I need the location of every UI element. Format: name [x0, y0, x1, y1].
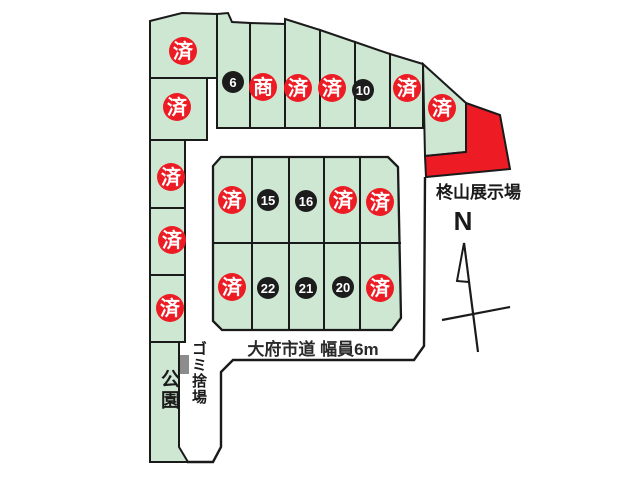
- marker-commercial: 商: [249, 73, 277, 101]
- svg-text:20: 20: [336, 280, 350, 295]
- lot-top-3: [285, 19, 320, 128]
- lot-top-6: [217, 13, 250, 128]
- marker-available-20: 20: [332, 276, 354, 298]
- svg-text:済: 済: [161, 165, 182, 189]
- svg-text:済: 済: [173, 39, 194, 63]
- marker-sold: 済: [284, 74, 312, 102]
- svg-text:15: 15: [261, 193, 275, 208]
- lot-map: 済 6 商 済 済 10 済 済: [0, 0, 640, 480]
- svg-text:済: 済: [222, 188, 243, 212]
- marker-sold: 済: [428, 94, 456, 122]
- svg-text:済: 済: [333, 188, 354, 212]
- north-label: N: [449, 206, 477, 237]
- marker-sold: 済: [158, 226, 186, 254]
- marker-sold: 済: [218, 186, 246, 214]
- north-arrow-icon: [442, 243, 510, 352]
- marker-sold: 済: [163, 93, 191, 121]
- road-label: 大府市道 幅員6m: [233, 335, 393, 360]
- svg-text:16: 16: [299, 194, 313, 209]
- marker-sold: 済: [169, 37, 197, 65]
- marker-available-22: 22: [257, 277, 279, 299]
- svg-text:済: 済: [370, 190, 391, 214]
- svg-text:商: 商: [253, 75, 273, 99]
- marker-sold: 済: [366, 188, 394, 216]
- svg-text:22: 22: [261, 281, 275, 296]
- lot-map-canvas: 済 6 商 済 済 10 済 済: [0, 0, 640, 480]
- marker-sold: 済: [329, 186, 357, 214]
- svg-text:6: 6: [229, 75, 236, 90]
- svg-text:済: 済: [222, 275, 243, 299]
- marker-sold: 済: [318, 74, 346, 102]
- svg-text:済: 済: [397, 76, 418, 100]
- park-label: 公園: [155, 369, 182, 411]
- svg-text:済: 済: [167, 95, 188, 119]
- svg-text:済: 済: [432, 96, 453, 120]
- svg-text:済: 済: [322, 76, 343, 100]
- marker-sold: 済: [366, 274, 394, 302]
- marker-available-6: 6: [222, 71, 244, 93]
- svg-text:済: 済: [370, 276, 391, 300]
- marker-sold: 済: [218, 273, 246, 301]
- exhibition-site-label: 柊山展示場: [436, 178, 521, 203]
- marker-available-15: 15: [257, 189, 279, 211]
- marker-sold: 済: [156, 294, 184, 322]
- marker-available-10: 10: [352, 79, 374, 101]
- marker-available-16: 16: [295, 190, 317, 212]
- marker-available-21: 21: [295, 277, 317, 299]
- marker-sold: 済: [157, 163, 185, 191]
- svg-text:済: 済: [162, 228, 183, 252]
- svg-text:済: 済: [160, 296, 181, 320]
- svg-text:10: 10: [356, 83, 370, 98]
- garbage-station-label: ゴミ捨場: [188, 341, 209, 405]
- svg-text:済: 済: [288, 76, 309, 100]
- svg-text:21: 21: [299, 281, 313, 296]
- marker-sold: 済: [393, 74, 421, 102]
